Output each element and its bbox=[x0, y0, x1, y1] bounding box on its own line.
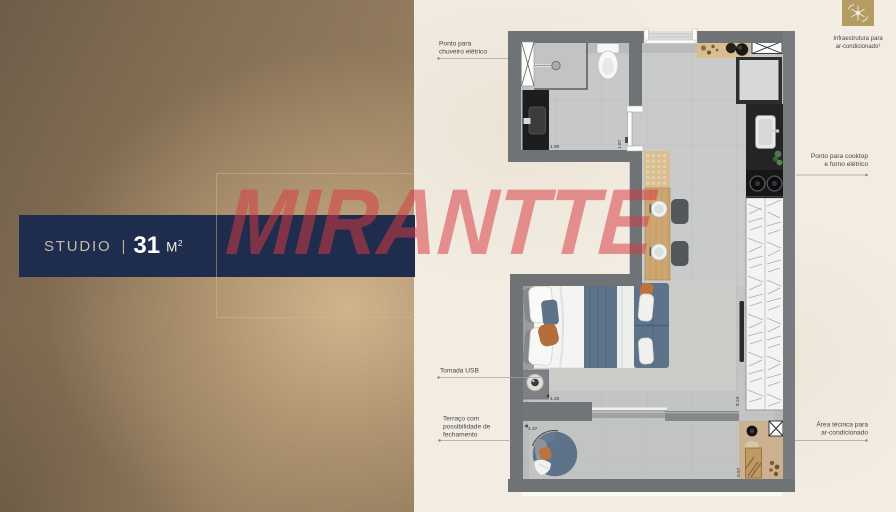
svg-text:Ponto para: Ponto para bbox=[439, 41, 472, 48]
svg-text:ar-condicionado¹: ar-condicionado¹ bbox=[836, 44, 881, 50]
svg-text:0.97: 0.97 bbox=[736, 467, 742, 477]
svg-text:4.37: 4.37 bbox=[528, 426, 538, 432]
svg-text:ar-condicionado: ar-condicionado bbox=[821, 430, 868, 437]
svg-text:Ponto para cooktop: Ponto para cooktop bbox=[811, 153, 869, 160]
svg-text:Área técnica para: Área técnica para bbox=[816, 420, 868, 429]
svg-text:1.80: 1.80 bbox=[550, 144, 560, 150]
svg-text:Terraço com: Terraço com bbox=[443, 416, 480, 423]
svg-text:e forno elétrico: e forno elétrico bbox=[824, 161, 868, 168]
svg-text:8.23: 8.23 bbox=[735, 396, 741, 406]
svg-text:Infraestrutura para: Infraestrutura para bbox=[833, 36, 883, 42]
svg-text:Tomada USB: Tomada USB bbox=[440, 368, 479, 375]
svg-text:4.40: 4.40 bbox=[550, 396, 560, 402]
svg-text:possibilidade de: possibilidade de bbox=[443, 424, 491, 431]
svg-text:chuveiro elétrico: chuveiro elétrico bbox=[439, 49, 487, 56]
svg-text:fechamento: fechamento bbox=[443, 432, 478, 439]
svg-text:1.87: 1.87 bbox=[617, 139, 623, 149]
